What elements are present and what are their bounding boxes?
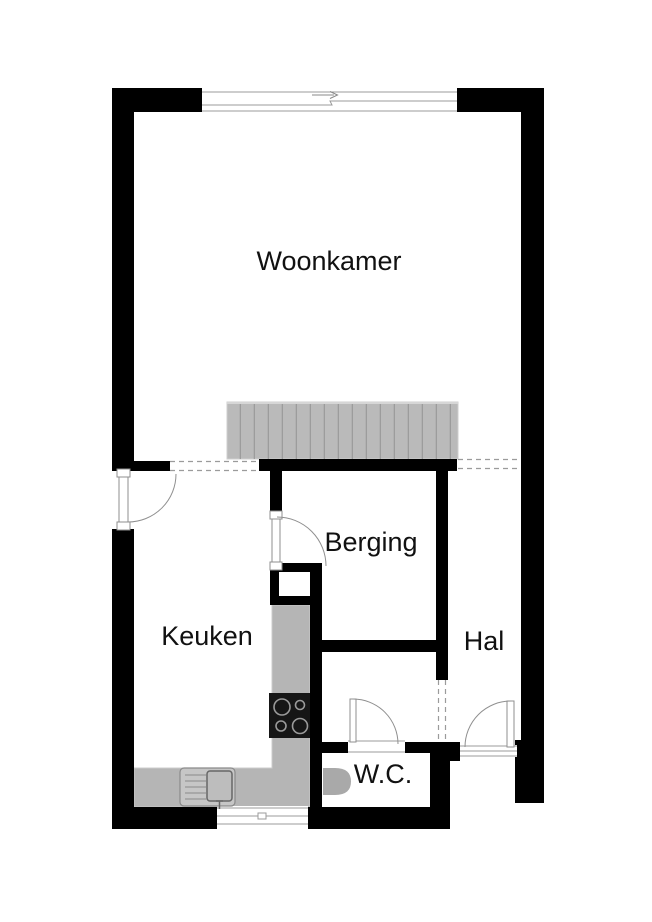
opening-woonkamer-hal — [458, 460, 520, 469]
room-label-berging: Berging — [324, 527, 417, 557]
room-label-hal: Hal — [464, 626, 505, 656]
wall-wc-top-right — [405, 742, 448, 753]
wall-keuken-top-stub — [134, 461, 170, 471]
room-label-woonkamer: Woonkamer — [256, 246, 401, 276]
floorplan-canvas: Woonkamer Berging Keuken Hal W.C. — [0, 0, 652, 922]
wall-keuken-wc-column — [310, 563, 322, 807]
toilet-icon — [323, 768, 351, 795]
interior-window-panel — [436, 680, 448, 742]
room-label-wc: W.C. — [354, 759, 413, 789]
sink-basin — [207, 771, 232, 801]
door-hinge-cap — [270, 511, 282, 519]
door-swing-arc — [128, 474, 176, 522]
wall-wc-top-left — [322, 742, 348, 753]
wall-right-corner-block — [515, 740, 544, 803]
wall-bottom-left — [112, 807, 217, 829]
opening-woonkamer-keuken — [170, 462, 259, 471]
door-threshold — [348, 740, 405, 753]
window-bottom — [217, 806, 308, 829]
door-swing-arc — [277, 517, 326, 566]
door-leaf — [350, 699, 356, 742]
door-berging — [270, 511, 326, 570]
wall-berging-bottom — [322, 640, 448, 652]
door-leaf — [119, 477, 128, 522]
wall-hal-bottom-stub — [445, 742, 460, 761]
window-center-tick — [258, 813, 266, 819]
door-hinge-cap — [117, 522, 130, 530]
stove — [269, 693, 310, 738]
wall-right — [521, 88, 544, 743]
door-hinge-cap — [270, 562, 282, 570]
floorplan-drawing: Woonkamer Berging Keuken Hal W.C. — [0, 0, 652, 922]
wall-under-stairs — [259, 459, 457, 471]
kitchen-sink — [180, 768, 235, 809]
wall-notch-bottom — [270, 596, 312, 605]
panel-gap — [436, 680, 448, 742]
door-swing-arc — [353, 699, 398, 744]
staircase — [227, 402, 458, 459]
door-leaf — [272, 519, 280, 562]
door-wc — [348, 699, 405, 753]
wall-bottom-middle — [308, 807, 450, 829]
sliding-door-top — [202, 88, 457, 112]
door-swing-arc — [465, 701, 511, 747]
door-front — [460, 701, 517, 757]
door-left-exterior — [117, 469, 176, 530]
door-leaf — [507, 701, 514, 747]
door-hinge-cap — [117, 469, 130, 477]
stove-body — [269, 693, 310, 738]
wall-keuken-berging-upper — [270, 471, 282, 513]
wall-left-lower — [112, 529, 134, 829]
wall-left-upper — [112, 88, 134, 471]
room-label-keuken: Keuken — [161, 621, 253, 651]
stairs-treads — [227, 402, 458, 459]
